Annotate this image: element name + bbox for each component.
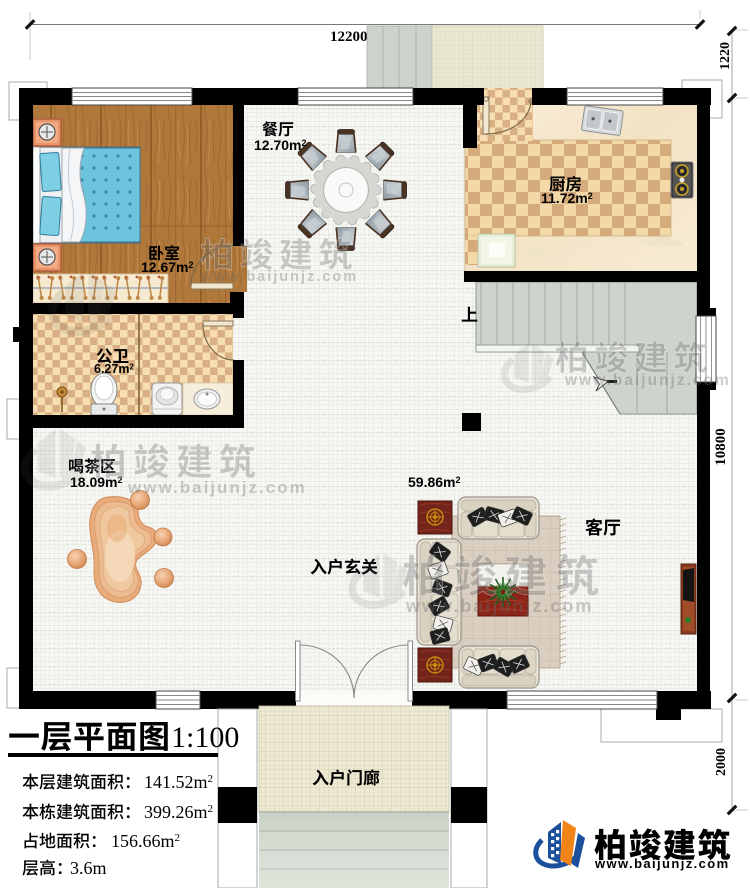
svg-text:11.72m2: 11.72m2 bbox=[541, 190, 593, 206]
svg-text:1220: 1220 bbox=[718, 42, 733, 70]
svg-text:141.52m2: 141.52m2 bbox=[144, 772, 213, 792]
svg-text:1:100: 1:100 bbox=[171, 721, 239, 754]
svg-text:www.baijunjz.com: www.baijunjz.com bbox=[594, 856, 730, 871]
svg-text:www.baijunjz.com: www.baijunjz.com bbox=[127, 478, 307, 497]
svg-text:156.66m2: 156.66m2 bbox=[111, 831, 180, 851]
svg-text:59.86m2: 59.86m2 bbox=[408, 474, 461, 490]
svg-text:2000: 2000 bbox=[714, 748, 729, 776]
svg-text:6.27m2: 6.27m2 bbox=[94, 362, 134, 376]
svg-text:12200: 12200 bbox=[330, 29, 368, 45]
svg-text:12.67m2: 12.67m2 bbox=[141, 259, 194, 275]
svg-text:12.70m2: 12.70m2 bbox=[254, 137, 307, 153]
svg-text:399.26m2: 399.26m2 bbox=[144, 802, 213, 822]
svg-text:3.6m: 3.6m bbox=[70, 858, 107, 878]
svg-text:www.baijunjz.com: www.baijunjz.com bbox=[564, 372, 731, 389]
svg-text:10800: 10800 bbox=[713, 428, 729, 466]
svg-text:www.baijunjz.com: www.baijunjz.com bbox=[200, 269, 358, 285]
svg-text:www.baijunjz.com: www.baijunjz.com bbox=[405, 596, 593, 616]
